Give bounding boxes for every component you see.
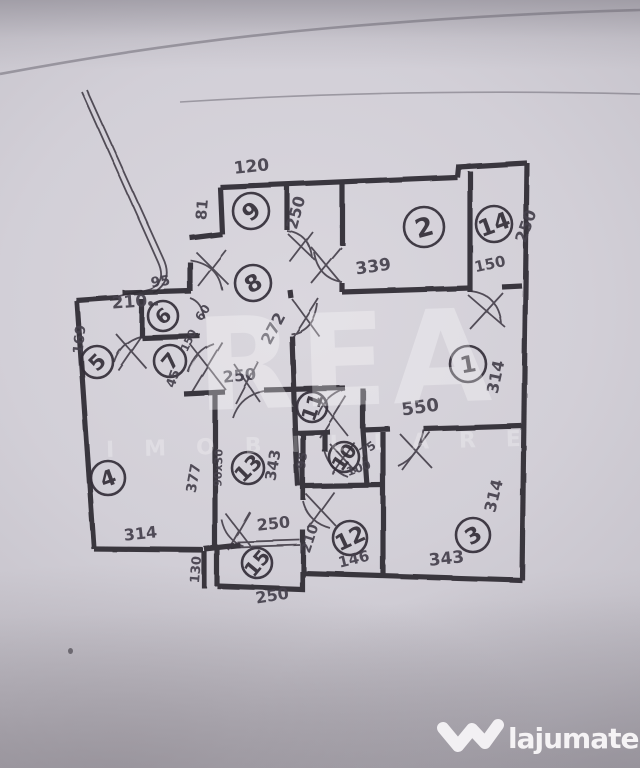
dimension-label: 210: [298, 522, 322, 555]
lajumate-logo-text: lajumate: [508, 722, 638, 755]
room-number: 15: [239, 545, 275, 582]
dimension-label: 343: [428, 547, 465, 571]
stairwell-wall-line: [82, 90, 167, 297]
dimension-label: 250: [511, 207, 540, 245]
room-number: 4: [91, 461, 125, 495]
dimension-label: 150: [473, 252, 507, 276]
dimension-label: 250: [256, 512, 291, 534]
dimension-label: 314: [480, 477, 507, 514]
room-number: 2: [404, 207, 444, 247]
dimension-label: 314: [123, 522, 158, 544]
room-number: 14: [475, 206, 514, 243]
room-number: 9: [233, 193, 269, 229]
svg-text:5: 5: [84, 349, 111, 376]
paper-crease: [0, 10, 640, 102]
dimension-label: 120: [233, 155, 271, 179]
svg-text:4: 4: [97, 465, 120, 494]
dimension-label: 95: [150, 273, 172, 292]
watermark-brand: REA: [194, 293, 498, 431]
dimension-label: 81: [192, 198, 212, 220]
svg-text:2: 2: [412, 211, 437, 245]
floorplan-photo: 921486571111013431215 120812502501503392…: [0, 0, 640, 768]
lajumate-logo: lajumate.ro: [436, 714, 640, 762]
lajumate-logo-icon: [436, 714, 504, 762]
svg-text:3: 3: [461, 522, 487, 551]
dimension-label: 339: [354, 255, 392, 280]
dimension-label: 377: [184, 463, 205, 495]
svg-text:15: 15: [239, 545, 275, 582]
svg-text:9: 9: [237, 197, 266, 227]
dimension-label: 169: [71, 324, 90, 355]
dimension-label: 130: [188, 556, 205, 584]
dimension-label: 210 .: [111, 290, 160, 313]
paper-speck: [68, 648, 73, 654]
dimension-label: 250: [254, 584, 290, 608]
